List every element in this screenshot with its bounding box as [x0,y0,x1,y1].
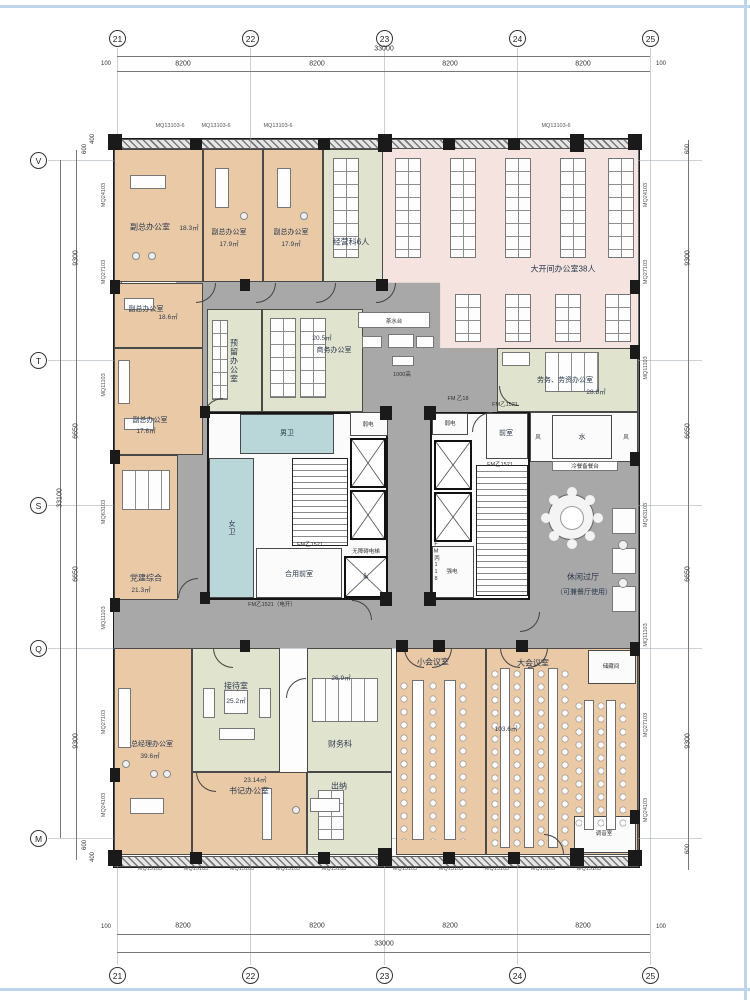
label-label: 副总办公室 [130,222,170,233]
grid-bubble-bottom: 25 [642,967,659,984]
column-block [443,852,455,864]
label-area: 17.9㎡ [219,238,238,248]
furniture-ws [505,294,531,342]
dimension-label: 100 [101,924,111,930]
label-label: 出纳 [331,781,347,792]
label-female_wc: 女卫 [226,520,236,536]
label-water: 水 [579,432,586,442]
furniture-chr [150,770,158,778]
dimension-label: 600 [685,844,691,854]
column-block [516,640,528,652]
wall-tag: MQ27103 [101,710,107,734]
label-wind: 风 [535,433,541,441]
furniture-desk [416,336,434,348]
dimension-label: 8200 [309,923,325,930]
furniture-desk [277,168,291,208]
furniture-ct [412,680,424,840]
label-label: 副总办公室 [133,415,168,425]
label-fm1521_auto: FM乙1521（电开） [248,600,296,608]
wall-tag: MQ11103 [101,373,107,396]
label-wind: 风 [623,433,629,441]
column-block [318,852,330,864]
label-label: 储藏间 [603,662,620,670]
column-block [380,592,392,606]
label-area: 18.6㎡ [158,311,177,321]
column-block [630,810,640,824]
label-male_wc: 男卫 [280,428,294,438]
column-block [508,138,520,150]
wall-tag: MQ15103 [393,866,417,872]
furniture-cs [458,680,468,840]
furniture-ws [505,158,531,258]
furniture-ws [300,318,326,398]
wall-tag: MQ24103 [101,793,107,817]
column-block [630,345,640,359]
wall-tag: MQ24103 [101,183,107,207]
furniture-chr [240,212,248,220]
dimension-label: 600 [82,840,88,850]
furniture-desk [612,586,636,612]
furniture-cs [596,700,604,830]
furniture-chr [618,578,628,588]
grid-bubble-bottom: 24 [509,967,526,984]
wall-tag: MQ11103 [643,623,649,646]
label-sub: （可兼餐厅使用） [556,587,612,597]
dimension-label: 400 [90,852,96,862]
label-label: 副总办公室 [274,227,309,237]
column-block [190,852,202,864]
label-accessible_elevator: 无障碍电梯 [352,547,380,555]
dimension-label: 33000 [374,941,393,948]
label-label: 接待室 [224,681,248,692]
furniture-ct [500,668,510,848]
wall-tag: MQ15103 [276,866,300,872]
dimension-label: 8200 [309,61,325,68]
dimension-label: 8200 [575,923,591,930]
frame-strip-right [744,0,747,1000]
furniture-chr [292,806,300,814]
column-block [628,134,642,150]
label-fm18: FM 乙18 [447,394,468,402]
wall-tag: MQ13103-6 [155,123,184,129]
label-area: 28.8㎡ [586,386,605,396]
furniture-chr [300,212,308,220]
wall-tag: MQ24103 [643,798,649,822]
column-block [630,452,640,466]
dimension-label: 6650 [685,423,692,439]
furniture-desk [388,334,414,348]
furniture-ws [270,318,296,398]
grid-bubble-top: 23 [376,30,393,47]
furniture-chr [132,252,140,260]
label-area: 18.3㎡ [179,222,198,232]
furniture-cs [399,680,409,840]
furniture-desk [130,798,164,814]
column-block [108,134,122,150]
dimension-label: 6650 [73,423,80,439]
label-label: 商务办公室 [317,345,352,355]
furniture-desk [130,175,166,189]
furniture-cs [428,680,440,840]
wall-tag: MQ13103-6 [541,123,570,129]
grid-line-vertical [650,48,651,965]
furniture-ws [212,320,228,400]
wall-tag: MQ11103 [643,356,649,379]
furniture-cs [536,668,546,848]
wall-tag: MQ15103 [577,866,601,872]
label-area: 103.6㎡ [495,723,518,733]
dimension-line [117,71,650,72]
frame-strip-bottom [0,988,750,991]
dimension-line [117,934,650,935]
dimension-label: 600 [685,144,691,154]
dimension-label: 600 [82,144,88,154]
furniture-chr [148,252,156,260]
grid-bubble-left: Q [30,640,47,657]
dimension-label: 400 [90,134,96,144]
column-block [570,848,584,866]
column-block [628,850,642,866]
label-area: 17.6㎡ [136,425,155,435]
wall-tag: MQ24103 [643,183,649,207]
column-block [200,406,210,418]
dimension-label: 33000 [374,46,393,53]
dimension-label: 9300 [73,733,80,749]
grid-bubble-bottom: 21 [109,967,126,984]
furniture-cs [512,668,522,848]
wall-tag: MQ63103 [101,500,107,524]
furniture-desk [215,168,229,208]
grid-bubble-bottom: 23 [376,967,393,984]
column-block [240,640,250,652]
elevator-3 [434,440,472,490]
column-block [318,138,330,150]
wall-tag: MQ27103 [643,713,649,737]
grid-bubble-left: M [30,830,47,847]
furniture-cs [490,668,498,848]
furniture-chr [163,770,171,778]
column-block [108,850,122,866]
wall-tag: MQ13103 [230,866,254,872]
grid-bubble-left: S [30,497,47,514]
furniture-ws [560,158,586,258]
dimension-label: 9300 [685,250,692,266]
furniture-ws [555,294,581,342]
label-strong_power: 强电 [446,567,457,575]
column-block [110,450,120,464]
furniture-desk [118,360,130,404]
wall-tag: MQ63103 [643,503,649,527]
dimension-label: 6650 [73,566,80,582]
room-small-meeting [396,648,486,855]
furniture-ct [606,700,616,830]
furniture-desk [612,548,636,574]
furniture-cs [560,668,570,848]
grid-bubble-top: 22 [242,30,259,47]
stair-right [476,465,528,596]
label-area: 21.3㎡ [131,584,150,594]
furniture-ct [444,680,456,840]
grid-bubble-bottom: 22 [242,967,259,984]
dimension-line [117,56,650,57]
label-label: 党建综合 [130,573,162,584]
furniture-wsh [122,470,170,510]
wheelchair-icon: ♿ [362,572,369,581]
furniture-desk [118,688,131,748]
wall-tag: MQ13103-6 [263,123,292,129]
column-block [110,598,120,612]
label-shared_front_room: 合用前室 [285,569,313,579]
grid-bubble-left: V [30,152,47,169]
label-buffet_counter: 冷餐备餐台 [571,462,599,470]
label-label: 小会议室 [417,657,449,668]
dimension-label: 100 [656,924,666,930]
wall-tag: MQ13103 [322,866,346,872]
room-vice1 [114,149,203,282]
column-block [424,592,436,606]
column-block [508,852,520,864]
stair-left [292,458,348,546]
wall-tag: MQ15103 [485,866,509,872]
column-block [433,640,445,652]
column-block [630,280,640,294]
label-area: 25.2㎡ [226,695,245,705]
furniture-cs [618,700,626,830]
label-area: 26.9㎡ [331,672,350,682]
dimension-label: 9300 [685,733,692,749]
label-area: 20.5㎡ [312,332,331,342]
column-block [570,134,584,152]
furniture-desk [612,508,636,534]
label-weak_power: 弱电 [444,419,455,427]
label-label: 经营科6人 [333,237,369,248]
elevator-4 [434,492,472,542]
column-block [378,134,392,152]
column-block [110,280,120,294]
dimension-label: 33100 [57,488,64,507]
column-block [630,642,640,656]
wall-tag: MQ15103 [184,866,208,872]
furniture-wsh [312,678,378,722]
wall-tag: MQ27103 [101,260,107,284]
label-label: 副总办公室 [212,227,247,237]
grid-bubble-left: T [30,352,47,369]
room-vice3 [263,149,323,282]
column-block [378,848,392,866]
label-label: 总经理办公室 [131,739,173,749]
frame-strip-top [0,5,750,8]
wall-tag: MQ13103-6 [201,123,230,129]
grid-bubble-top: 24 [509,30,526,47]
furniture-chr [618,540,628,550]
dimension-label: 8200 [175,61,191,68]
dimension-line [117,952,650,953]
column-block [200,592,210,604]
column-block [443,138,455,150]
furniture-cs [574,700,582,830]
column-block [190,138,202,150]
grid-bubble-top: 21 [109,30,126,47]
furniture-desk [203,688,215,718]
furniture-ct [584,700,594,830]
furniture-ws [395,158,421,258]
label-label: 劳务、劳资办公室 [537,375,593,385]
dimension-label: 6650 [685,566,692,582]
furniture-ws [608,158,634,258]
label-fm1521: FM乙1521 [492,400,518,408]
furniture-desk [392,356,414,366]
label-label: 调音室 [596,829,613,837]
elevator-1 [350,438,386,488]
label-label: 大开间办公室38人 [531,264,596,275]
dimension-label: 8200 [575,61,591,68]
furniture-ws [455,294,481,342]
dimension-label: 8200 [442,923,458,930]
furniture-desk [502,352,530,366]
wall-tag: MQ13103 [138,866,162,872]
label-label: 大会议室 [517,658,549,669]
label-fm1521: FM乙1521 [297,540,323,548]
dimension-label: 9300 [73,250,80,266]
label-area: 23.14㎡ [244,774,267,784]
furniture-desk [362,336,382,348]
grid-bubble-top: 25 [642,30,659,47]
wall-tag: MQ13103 [531,866,555,872]
furniture-chr [122,760,130,768]
furniture-desk [219,728,255,740]
elevator-2 [350,490,386,540]
column-block [424,406,436,420]
wall-tag: MQ13103 [439,866,463,872]
dimension-label: 100 [101,61,111,67]
furniture-ct [524,668,534,848]
wall-tag: MQ27103 [643,260,649,284]
label-label: 预留办公室 [229,339,240,384]
label-fm1521: FM乙1521 [487,460,513,468]
column-block [396,640,408,652]
wall-tag: MQ11103 [101,606,107,629]
label-label: 休闲过厅 [567,572,599,583]
label-area: 17.9㎡ [281,238,300,248]
floor-plan-sheet: 21222324252122232425VTSQM330008200820082… [0,0,750,1000]
label-label: 财务科 [328,739,352,750]
dimension-label: 100 [656,61,666,67]
label-fmb118: FM丙118 [432,541,440,583]
furniture-ws [605,294,631,342]
label-front_room: 前室 [499,428,513,438]
furniture-ws [450,158,476,258]
room-vice2 [203,149,263,282]
label-label: 书记办公室 [229,786,269,797]
column-block [380,406,392,420]
dimension-label: 8200 [175,923,191,930]
furniture-desk [310,798,340,812]
column-block [240,279,250,291]
dimension-label: 8200 [442,61,458,68]
label-tea_station: 茶水台 [386,317,403,325]
label-corridor_note: 1000高 [393,370,411,378]
furniture-ct [548,668,558,848]
column-block [110,768,120,782]
column-block [376,279,388,291]
furniture-desk [259,688,271,718]
round-table [548,494,594,540]
label-area: 39.6㎡ [140,750,159,760]
label-weak_power: 弱电 [362,420,373,428]
